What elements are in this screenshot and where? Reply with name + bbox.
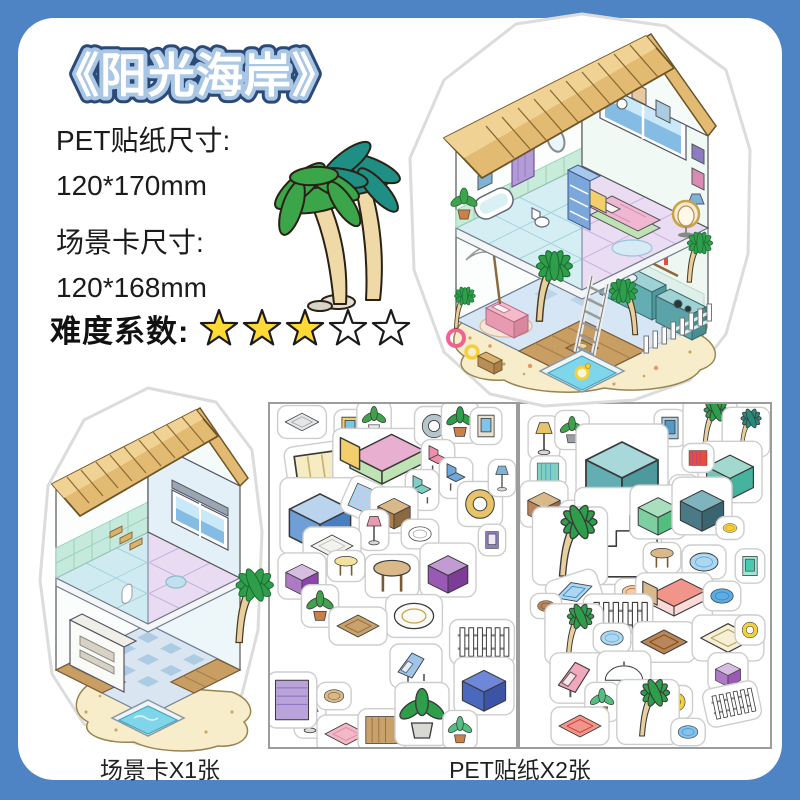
difficulty-stars xyxy=(197,308,412,350)
blue-pouf-sticker xyxy=(671,718,705,745)
page-title-text: 《阳光海岸》 xyxy=(52,49,340,102)
hanging-shelf-sticker xyxy=(278,406,327,439)
pink-mat-sticker xyxy=(551,707,609,745)
tall-palm-sticker xyxy=(533,503,608,585)
small-tree-sticker xyxy=(443,710,477,749)
round-table-sticker xyxy=(365,554,419,597)
spec-pet-value: 120*170mm xyxy=(56,163,230,208)
caption-sticker-count: PET贴纸X2张 xyxy=(300,751,740,785)
wall-art-sticker xyxy=(478,524,505,556)
bar-stool-sticker xyxy=(643,542,681,573)
yellow-float-sticker xyxy=(735,615,765,645)
main-house-illustration xyxy=(394,8,772,422)
storage-basket-sticker xyxy=(317,682,351,709)
difficulty-row: 难度系数: xyxy=(50,306,412,351)
star-icon xyxy=(241,308,283,350)
scene-card-illustration xyxy=(26,382,272,748)
bathtub-sticker xyxy=(386,595,443,638)
star-icon xyxy=(327,308,369,350)
mint-frame-sticker xyxy=(735,549,765,583)
difficulty-label: 难度系数: xyxy=(50,306,189,351)
sticker-sheet-2 xyxy=(518,402,772,749)
pink-lamp-sticker xyxy=(359,510,389,551)
star-icon xyxy=(198,308,240,350)
purple-table-sticker xyxy=(420,543,476,597)
spec-scene-label: 场景卡尺寸: xyxy=(56,220,230,265)
yellow-stool-sticker xyxy=(327,550,365,581)
kettle-sticker xyxy=(716,517,744,540)
caption-scene-card: 场景卡X1张 xyxy=(58,751,262,785)
palm-tree-icon xyxy=(250,104,412,316)
spec-scene-value: 120*168mm xyxy=(56,265,230,310)
kiddie-pool-sticker xyxy=(593,623,631,653)
blue-lamp-sticker xyxy=(488,459,515,496)
purple-curtain-sticker xyxy=(268,672,317,728)
round-rug-sticker xyxy=(703,581,741,611)
sticker-sheet-1 xyxy=(268,402,518,749)
spice-bottles-sticker xyxy=(682,444,714,473)
spec-list: PET贴纸尺寸: 120*170mm 场景卡尺寸: 120*168mm xyxy=(56,118,230,310)
spec-pet-label: PET贴纸尺寸: xyxy=(56,118,230,163)
grand-piano-sticker xyxy=(454,657,514,715)
scene-beanbag xyxy=(166,576,186,588)
potted-palm-tall-sticker xyxy=(617,678,679,745)
deck-chair-sticker xyxy=(390,644,442,688)
page-background: { "product": { "title": "《阳光海岸》" }, "spe… xyxy=(0,0,800,800)
star-icon xyxy=(284,308,326,350)
house-bedroom-rug xyxy=(612,240,652,256)
large-plant-sticker xyxy=(395,683,449,746)
wall-shelf-long-sticker xyxy=(329,607,387,645)
